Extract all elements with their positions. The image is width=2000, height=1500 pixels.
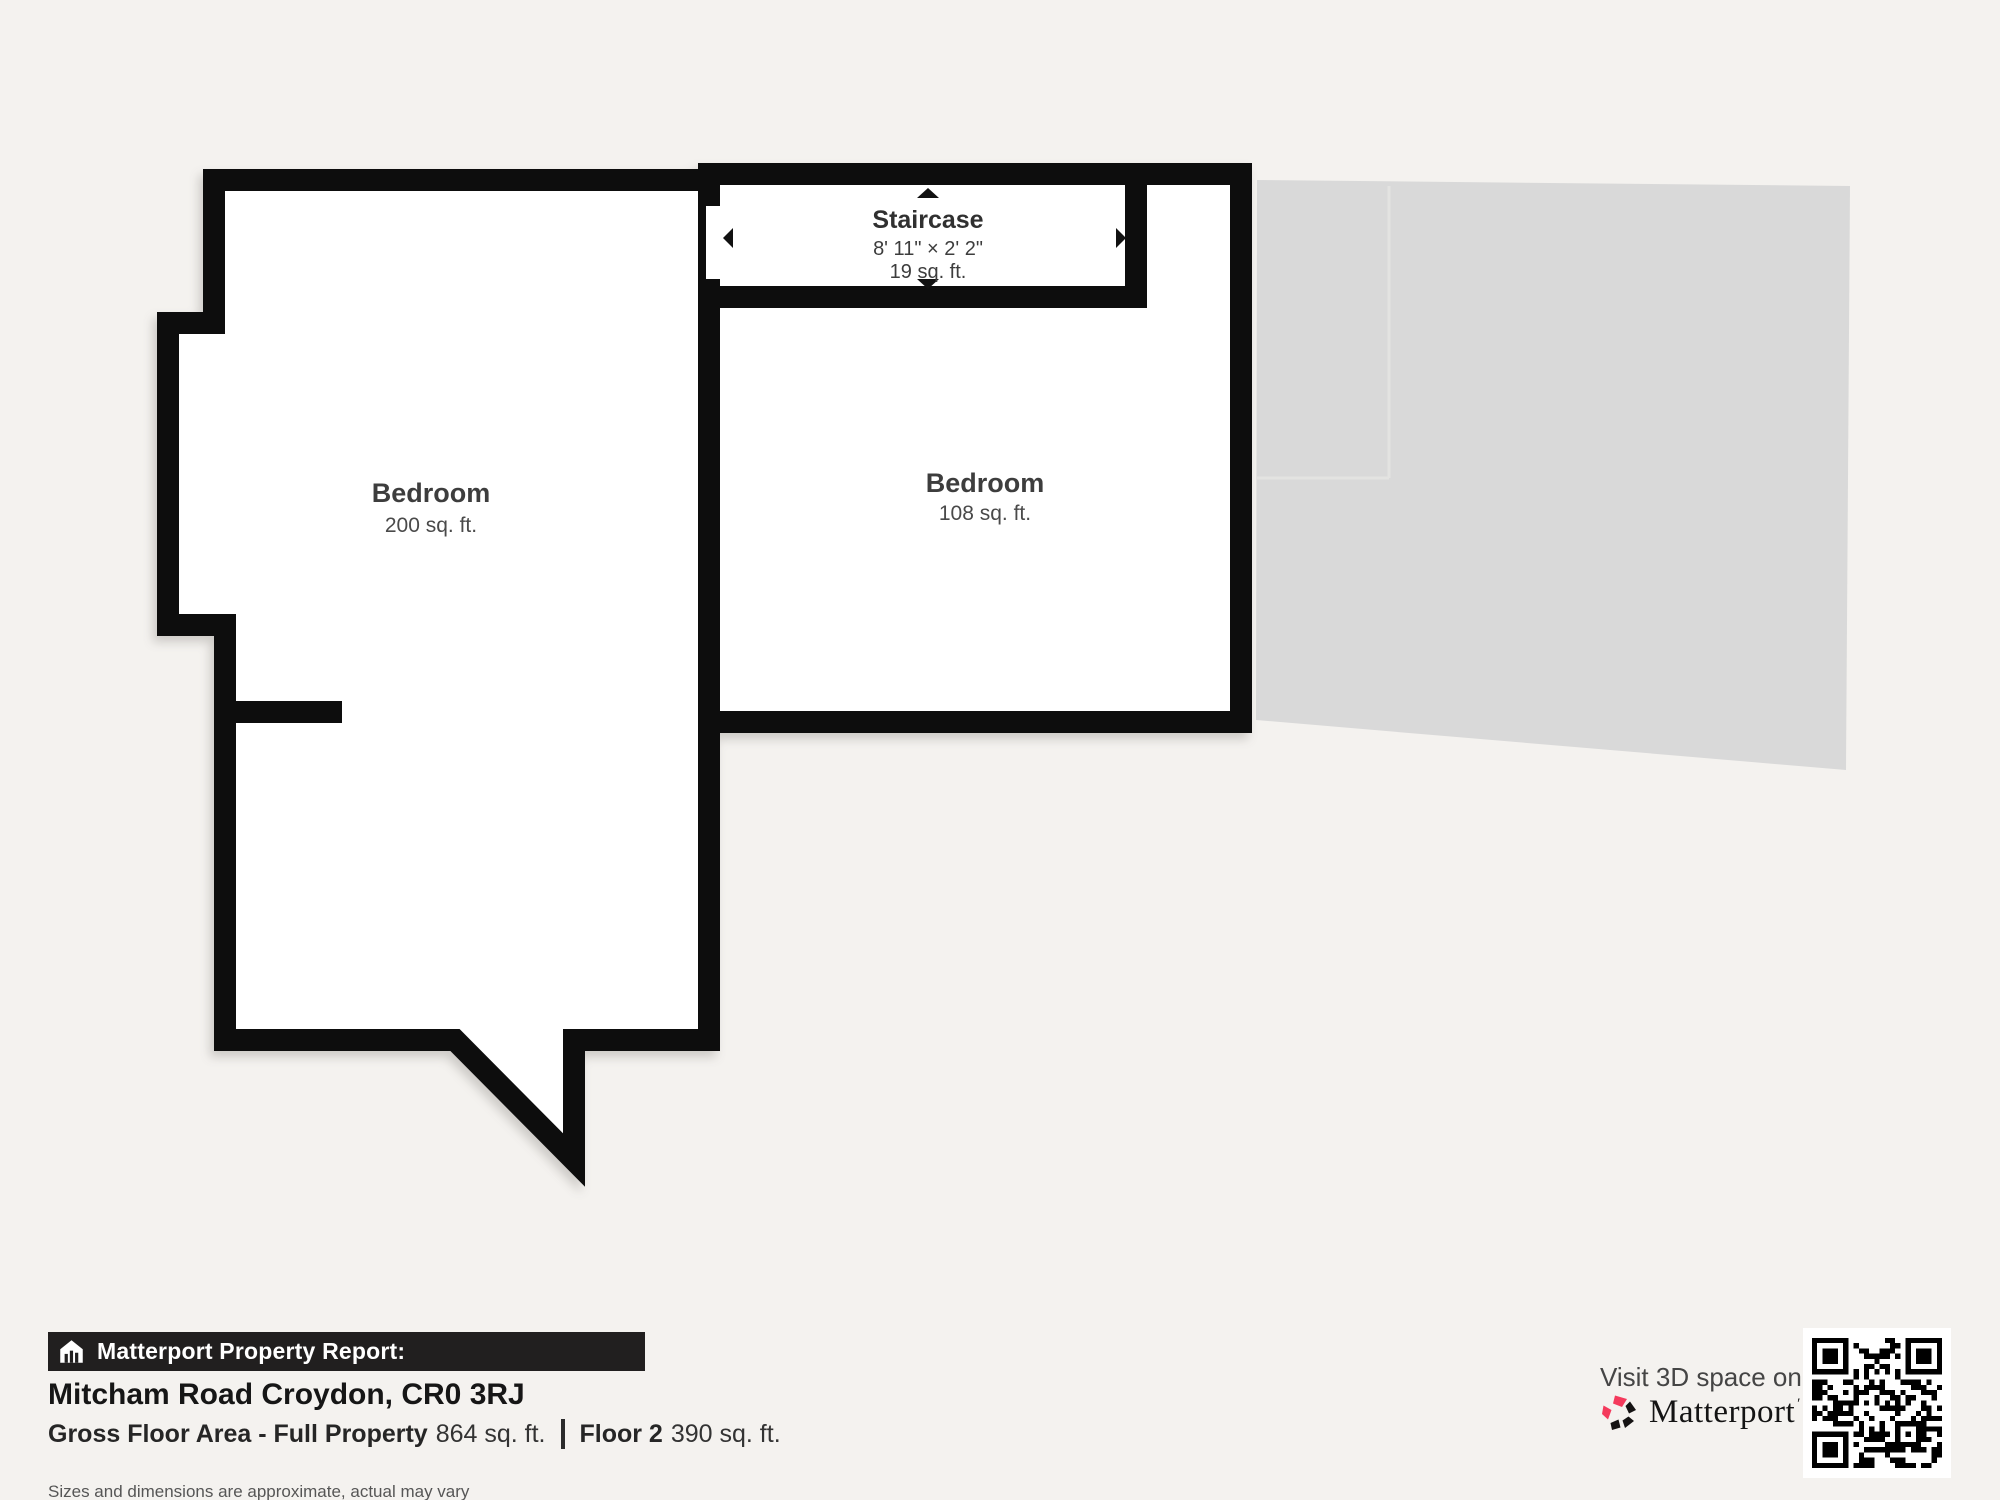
gross-floor-area-value: 864 sq. ft. (436, 1420, 546, 1449)
left-bedroom-name: Bedroom (372, 478, 491, 508)
floor-area-line: Gross Floor Area - Full Property 864 sq.… (48, 1419, 781, 1449)
matterport-logo: Matterport′ (1601, 1394, 1801, 1431)
matterport-pinwheel-icon (1601, 1394, 1637, 1431)
floor-label: Floor 2 (580, 1420, 663, 1449)
gross-floor-area-label: Gross Floor Area - Full Property (48, 1420, 428, 1449)
qr-code (1803, 1328, 1951, 1478)
right-bedroom-name: Bedroom (926, 468, 1045, 498)
left-bedroom-area: 200 sq. ft. (385, 514, 477, 537)
floor-plan-page: Bedroom 200 sq. ft. Bedroom 108 sq. ft. … (0, 0, 2000, 1500)
property-address: Mitcham Road Croydon, CR0 3RJ (48, 1378, 525, 1412)
trademark-tick: ′ (1797, 1396, 1801, 1412)
floorplan-svg: Bedroom 200 sq. ft. Bedroom 108 sq. ft. … (0, 0, 2000, 1500)
stair-door-opening (706, 206, 720, 279)
right-bedroom-area: 108 sq. ft. (939, 502, 1031, 525)
report-title-bar: Matterport Property Report: (48, 1332, 645, 1371)
staircase-area: 19 sq. ft. (890, 261, 967, 283)
separator-bar (561, 1419, 565, 1449)
matterport-wordmark: Matterport′ (1649, 1394, 1801, 1431)
ghost-floor-outline (1256, 180, 1850, 770)
disclaimer-text: Sizes and dimensions are approximate, ac… (48, 1482, 469, 1500)
house-icon (59, 1339, 84, 1364)
left-bedroom-floor (168, 180, 709, 1160)
visit-3d-space-text: Visit 3D space on (1600, 1362, 1802, 1393)
staircase-dimensions: 8' 11" × 2' 2" (873, 238, 983, 260)
staircase-name: Staircase (872, 206, 983, 234)
report-bar-label: Matterport Property Report: (97, 1338, 405, 1365)
floor-value: 390 sq. ft. (671, 1420, 781, 1449)
